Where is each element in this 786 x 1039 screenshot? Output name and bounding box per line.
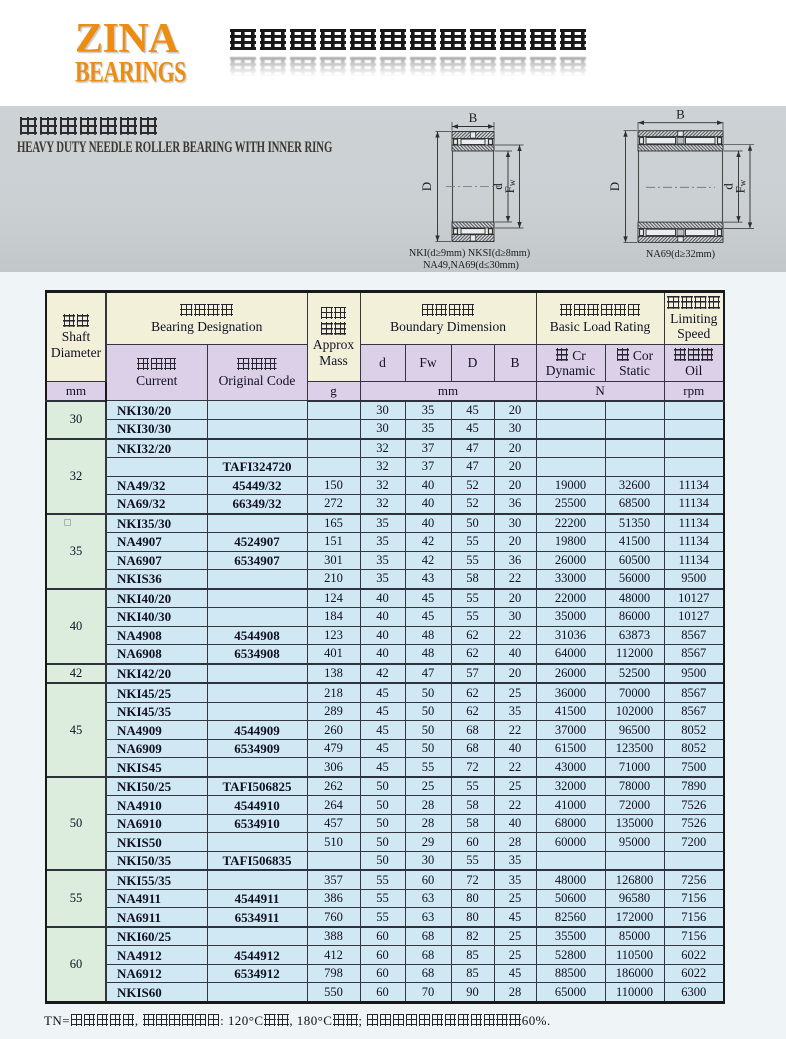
svg-text:Fw: Fw xyxy=(733,179,748,193)
svg-text:NA49,NA69(d≤30mm): NA49,NA69(d≤30mm) xyxy=(423,260,519,271)
svg-text:B: B xyxy=(469,110,478,125)
svg-text:D: D xyxy=(419,182,434,191)
svg-text:Fw: Fw xyxy=(502,179,517,193)
svg-text:NKI(d≥9mm) NKSI(d≥8mm): NKI(d≥9mm) NKSI(d≥8mm) xyxy=(409,248,530,259)
svg-text:NA69(d≥32mm): NA69(d≥32mm) xyxy=(646,249,715,260)
svg-text:D: D xyxy=(607,182,622,191)
svg-text:B: B xyxy=(676,107,685,122)
